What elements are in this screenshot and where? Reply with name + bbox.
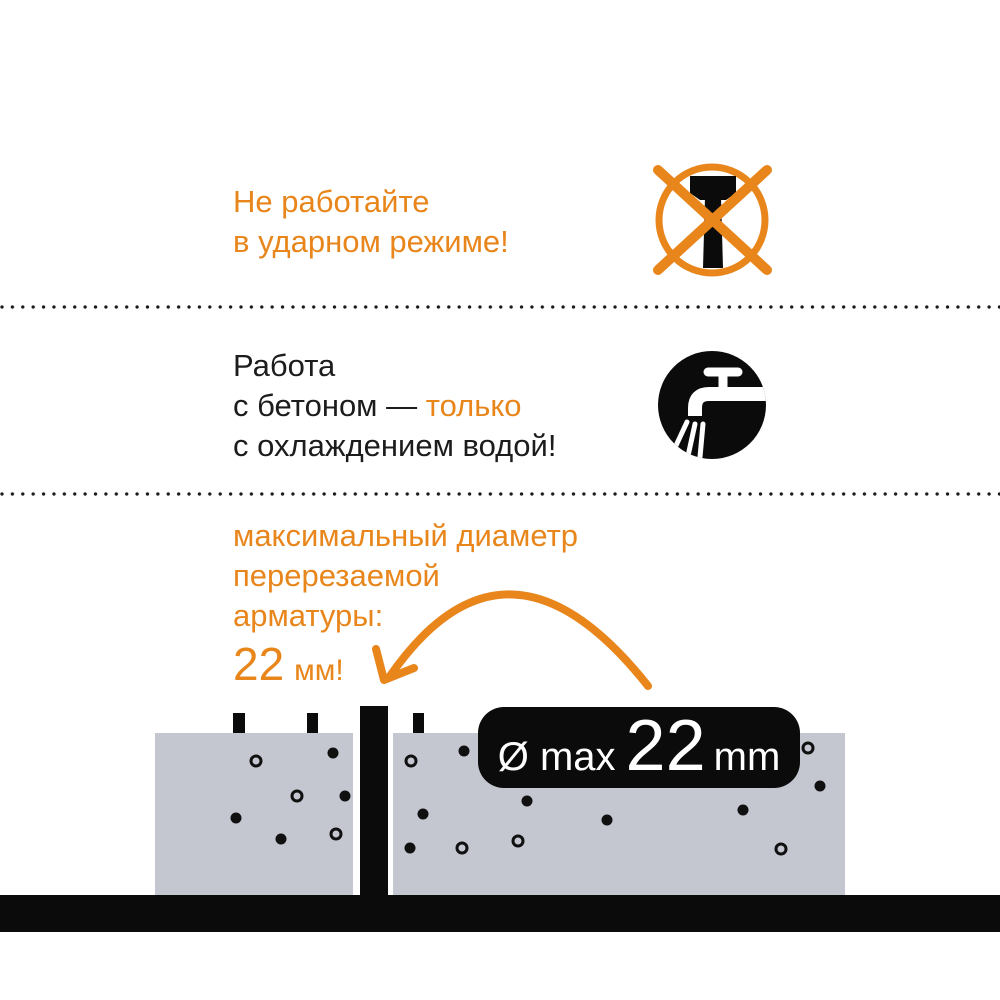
aggregate-dot-filled (522, 796, 533, 807)
aggregate-dot-filled (405, 843, 416, 854)
aggregate-dot-open (775, 843, 788, 856)
aggregate-dot-open (330, 828, 343, 841)
no-hammer-icon (645, 153, 779, 287)
water-line2-prefix: с бетоном — (233, 388, 426, 423)
water-line1: Работа (233, 348, 335, 383)
aggregate-dot-filled (340, 791, 351, 802)
water-line3: с охлаждением водой! (233, 428, 556, 463)
aggregate-dot-filled (418, 809, 429, 820)
cut-rebar-bar (360, 706, 388, 896)
aggregate-dot-open (250, 755, 263, 768)
badge-prefix: Ø max (498, 735, 616, 779)
aggregate-dot-filled (602, 815, 613, 826)
rebar-stub (307, 713, 318, 733)
ground-baseline (0, 895, 1000, 932)
aggregate-dot-filled (459, 746, 470, 757)
water-line2-highlight: только (426, 388, 522, 423)
aggregate-dot-filled (328, 748, 339, 759)
aggregate-dot-open (802, 742, 815, 755)
water-line2: с бетоном — только (233, 388, 522, 423)
aggregate-dot-open (456, 842, 469, 855)
aggregate-dot-filled (231, 813, 242, 824)
water-cooling-faucet-icon (656, 349, 768, 461)
aggregate-dot-filled (276, 834, 287, 845)
aggregate-dot-filled (738, 805, 749, 816)
dotted-separator (0, 492, 1000, 496)
aggregate-dot-open (291, 790, 304, 803)
rebar-unit: мм! (294, 654, 344, 687)
aggregate-dot-open (405, 755, 418, 768)
rebar-value-line: 22мм! (233, 641, 344, 688)
water-cooling-text: Работа с бетоном — только с охлаждением … (233, 346, 556, 466)
badge-unit: mm (714, 735, 781, 779)
aggregate-dot-filled (815, 781, 826, 792)
curved-arrow-icon (356, 500, 676, 700)
dotted-separator (0, 305, 1000, 309)
no-impact-line1: Не работайте (233, 184, 430, 219)
badge-value: 22 (626, 706, 706, 786)
rebar-stub (233, 713, 245, 733)
rebar-stub (413, 713, 424, 733)
no-impact-line2: в ударном режиме! (233, 224, 509, 259)
diameter-badge: Ø max22mm (478, 707, 800, 788)
aggregate-dot-open (512, 835, 525, 848)
faucet-circle (658, 351, 766, 459)
rebar-value: 22 (233, 638, 284, 690)
infographic-canvas: Не работайте в ударном режиме! Работа с … (0, 0, 1000, 1000)
no-impact-text: Не работайте в ударном режиме! (233, 182, 509, 262)
